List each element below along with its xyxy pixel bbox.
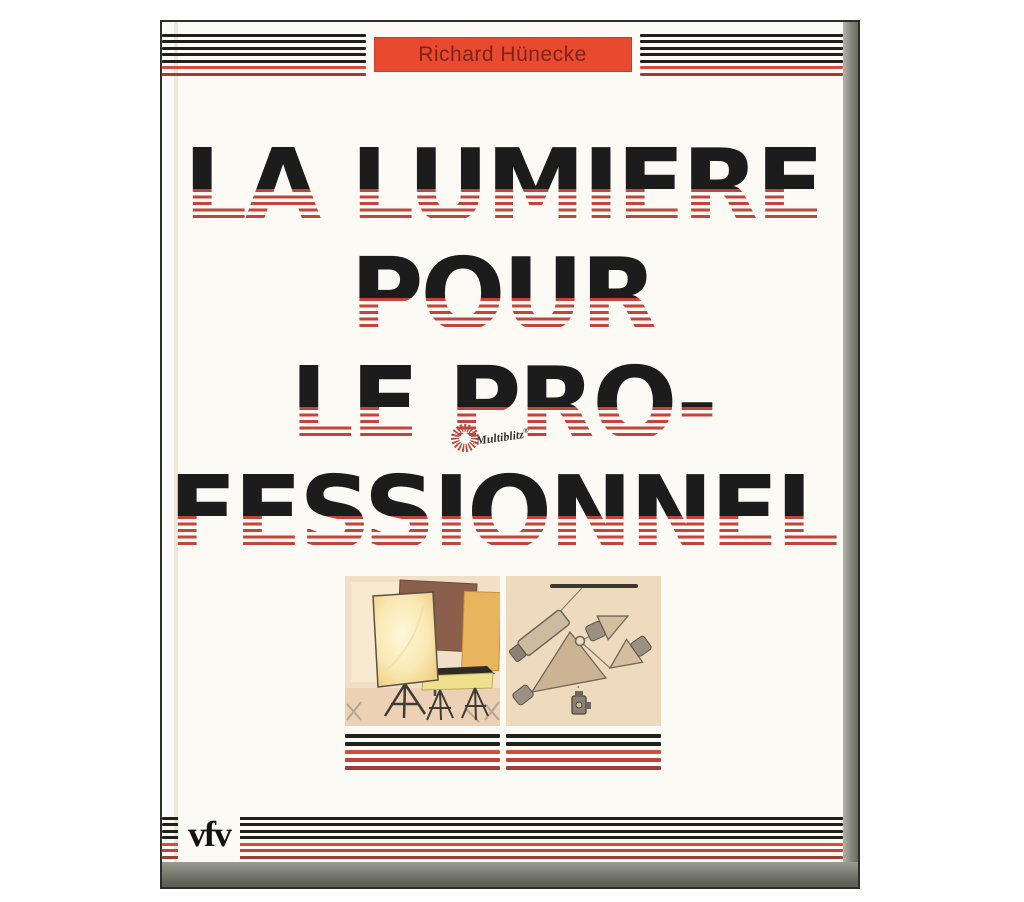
diagram-illustration-panel [506, 576, 661, 774]
multiblitz-wordmark: Multiblitz® [475, 426, 530, 448]
vfv-logo-text: vfv [188, 813, 230, 855]
book-page-edge-bottom [162, 862, 858, 887]
stripe-lines-bottom [162, 817, 843, 859]
author-band: Richard Hünecke [162, 30, 843, 79]
stripe-lines-right [640, 30, 844, 79]
book-title: LA LUMIERE POUR LE PRO- FESSIONNEL [162, 138, 843, 574]
title-line-1: LA LUMIERE [162, 138, 843, 233]
author-name: Richard Hünecke [418, 43, 587, 67]
vfv-publisher-logo: vfv [178, 809, 240, 859]
studio-equipment-illustration [345, 576, 500, 726]
illustration-row [162, 576, 843, 774]
book-cover-photo: Richard Hünecke LA LUMIERE POUR LE PRO- … [160, 20, 860, 889]
title-line-2: POUR [162, 247, 843, 342]
stripe-lines-under-right-image [506, 734, 661, 770]
author-banner: Richard Hünecke [374, 37, 632, 72]
registered-mark: ® [523, 426, 529, 435]
book-page-edge-right [843, 22, 858, 887]
stripe-lines-under-left-image [345, 734, 500, 770]
stripe-lines-left [162, 30, 366, 79]
studio-illustration-panel [345, 576, 500, 774]
lighting-diagram-illustration [506, 576, 661, 726]
book-cover-face: Richard Hünecke LA LUMIERE POUR LE PRO- … [162, 22, 843, 862]
multiblitz-logo: Multiblitz® [448, 420, 540, 472]
title-line-4: FESSIONNEL [162, 465, 843, 560]
publisher-band: vfv [162, 813, 843, 862]
